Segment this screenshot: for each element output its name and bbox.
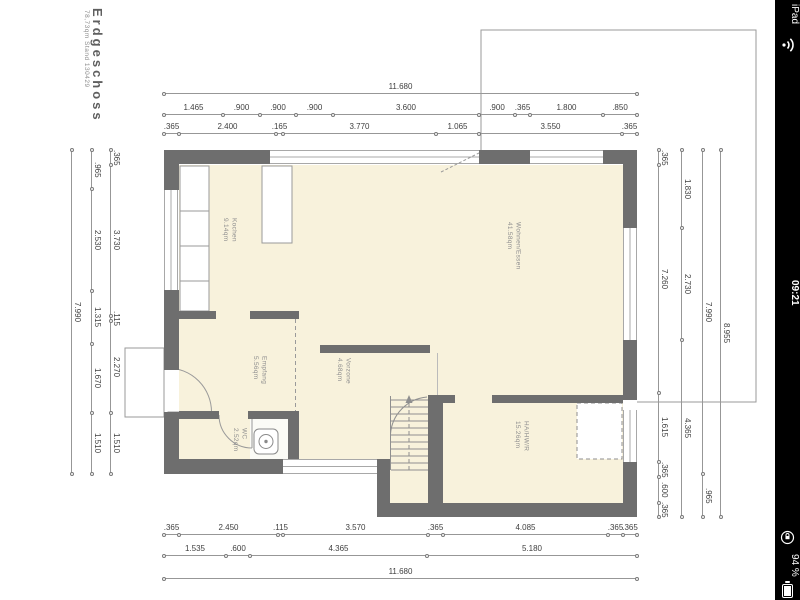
dimension-tick [294, 113, 298, 117]
wall [288, 415, 299, 459]
dimension-label: .900 [223, 102, 260, 113]
dimension-label: 1.510 [92, 413, 103, 474]
equipment-area-dashed [577, 403, 622, 459]
dimension-tick [281, 533, 285, 537]
floor-subtitle: 78,73qm Stand 130429 [83, 10, 90, 228]
room-name: Kochen [229, 218, 237, 242]
room-area: 5.56qm [251, 356, 259, 384]
dimension-label: 8.955 [721, 150, 732, 517]
room-label: Kochen9.14qm [221, 218, 237, 242]
dimension-label: .365 [608, 522, 623, 533]
dimension-tick [109, 472, 113, 476]
wall [623, 150, 637, 228]
dimension-tick [221, 113, 225, 117]
dimension-tick [606, 533, 610, 537]
dimension-label: 2.450 [179, 522, 278, 533]
wall [479, 150, 530, 164]
wall [428, 395, 443, 505]
dimension-label: 7.260 [659, 165, 670, 393]
dimension-tick [224, 554, 228, 558]
washbasin [254, 429, 278, 454]
room-area: 4.68qm [335, 358, 343, 384]
dimension-label: 2.270 [111, 321, 122, 413]
dimension-label: 3.550 [479, 121, 622, 132]
wall [179, 411, 219, 419]
dimension-tick [162, 92, 166, 96]
wall [377, 459, 390, 517]
dimension-label: .600 [226, 543, 250, 554]
dimension-label: .365 [659, 462, 670, 477]
dimension-tick [162, 577, 166, 581]
dimension-label: 1.800 [530, 102, 603, 113]
room-area: 41.58qm [505, 222, 513, 270]
dimension-tick [434, 132, 438, 136]
dimension-tick [513, 113, 517, 117]
dimension-label: .365 [164, 522, 179, 533]
wall [248, 411, 299, 419]
dimension-tick [621, 533, 625, 537]
dimension-tick [425, 554, 429, 558]
room-area: 9.14qm [221, 218, 229, 242]
dimension-tick [274, 132, 278, 136]
entrance-porch [125, 348, 164, 417]
dimension-label: 2.400 [179, 121, 276, 132]
wall [164, 290, 179, 370]
dimension-label: .600 [659, 477, 670, 503]
wall [390, 503, 637, 517]
dimension-label: 2.530 [92, 189, 103, 291]
dimension-tick [331, 113, 335, 117]
dimension-label: 1.535 [164, 543, 226, 554]
dimension-label: 3.770 [283, 121, 436, 132]
dimension-label: 5.180 [427, 543, 637, 554]
device-name: iPad [775, 4, 800, 24]
dimension-label: 1.615 [659, 393, 670, 462]
dimension-label: 1.065 [436, 121, 479, 132]
dimension-label: .900 [296, 102, 333, 113]
dimension-tick [477, 132, 481, 136]
dimension-tick [162, 554, 166, 558]
wall [164, 459, 283, 474]
floorplan-canvas[interactable]: Erdgeschoss 78,73qm Stand 130429 [0, 0, 775, 600]
dimension-tick [177, 132, 181, 136]
dimension-label: .965 [92, 150, 103, 189]
dimension-tick [177, 533, 181, 537]
wall [164, 150, 270, 164]
dimension-label: 7.990 [703, 150, 714, 474]
wall [443, 395, 455, 403]
dimension-tick [281, 132, 285, 136]
dimension-label: 1.830 [682, 150, 693, 228]
room-name: Wohnen/Essen [513, 222, 521, 270]
dimension-tick [441, 533, 445, 537]
dimension-label: .365 [659, 150, 670, 165]
dimension-label: .900 [479, 102, 515, 113]
dimension-tick [528, 113, 532, 117]
room-name: WC [239, 428, 247, 451]
dimension-label: 4.365 [682, 340, 693, 517]
wall [492, 395, 623, 403]
dimension-label: 7.990 [72, 150, 83, 474]
dimension-tick [162, 533, 166, 537]
status-time: 09:21 [775, 280, 800, 306]
dimension-tick [162, 132, 166, 136]
dimension-label: .365 [111, 150, 122, 165]
dimension-tick [90, 472, 94, 476]
room-label: Vorzone4.68qm [335, 358, 351, 384]
dimension-label: .365 [428, 522, 443, 533]
room-label: HA/HW/R15.26qm [513, 421, 529, 451]
dimension-label: 4.365 [250, 543, 427, 554]
dimension-tick [276, 533, 280, 537]
room-name: Vorzone [343, 358, 351, 384]
dimension-tick [680, 515, 684, 519]
ipad-status-bar: iPad 09:21 94 % [775, 0, 800, 600]
dimension-tick [719, 515, 723, 519]
wall [320, 345, 430, 353]
room-area: 2.52qm [231, 428, 239, 451]
room-name: HA/HW/R [521, 421, 529, 451]
dimension-label: 1.670 [92, 344, 103, 413]
dimension-tick [620, 132, 624, 136]
dimension-tick [162, 113, 166, 117]
dimension-label: .365 [623, 522, 637, 533]
dimension-label: 1.465 [164, 102, 223, 113]
dimension-tick [635, 132, 639, 136]
dimension-label: .365 [164, 121, 179, 132]
dimension-tick [635, 577, 639, 581]
app-screen: Erdgeschoss 78,73qm Stand 130429 [0, 0, 800, 600]
dimension-tick [701, 515, 705, 519]
dimension-label: .365 [659, 503, 670, 517]
wall [164, 311, 216, 319]
dimension-tick [70, 472, 74, 476]
dimension-tick [635, 533, 639, 537]
room-label: Wohnen/Essen41.58qm [505, 222, 521, 270]
dimension-tick [426, 533, 430, 537]
rotation-lock-icon [780, 530, 795, 545]
dimension-label: 1.510 [111, 413, 122, 474]
dimension-label: 3.600 [333, 102, 479, 113]
dimension-tick [248, 554, 252, 558]
dimension-tick [477, 113, 481, 117]
dimension-label: 3.570 [283, 522, 428, 533]
dimension-tick [657, 515, 661, 519]
dimension-label: 11.680 [164, 81, 637, 92]
dimension-label: .365 [622, 121, 637, 132]
dimension-tick [635, 554, 639, 558]
wall [623, 340, 637, 400]
battery-percent: 94 % [775, 554, 800, 577]
dimension-label: 3.730 [111, 165, 122, 316]
dimension-label: .965 [703, 474, 714, 517]
room-area: 15.26qm [513, 421, 521, 451]
room-fill-main [179, 165, 623, 459]
dimension-label: .165 [276, 121, 283, 132]
dimension-label: .900 [260, 102, 296, 113]
wifi-icon [780, 36, 796, 54]
dimension-label: 1.315 [92, 291, 103, 344]
dimension-label: .365 [515, 102, 530, 113]
room-name: Empfang [259, 356, 267, 384]
room-label: Empfang5.56qm [251, 356, 267, 384]
dimension-label: 4.085 [443, 522, 608, 533]
wall [250, 311, 299, 319]
dimension-tick [635, 113, 639, 117]
room-label: WC2.52qm [231, 428, 247, 451]
room-fill-hahwr-extension [390, 459, 623, 503]
dimension-tick [258, 113, 262, 117]
dimension-label: 2.730 [682, 228, 693, 340]
wall [164, 150, 179, 190]
dimension-tick [635, 92, 639, 96]
dimension-label: .850 [603, 102, 637, 113]
dimension-label: 11.680 [164, 566, 637, 577]
dimension-tick [601, 113, 605, 117]
